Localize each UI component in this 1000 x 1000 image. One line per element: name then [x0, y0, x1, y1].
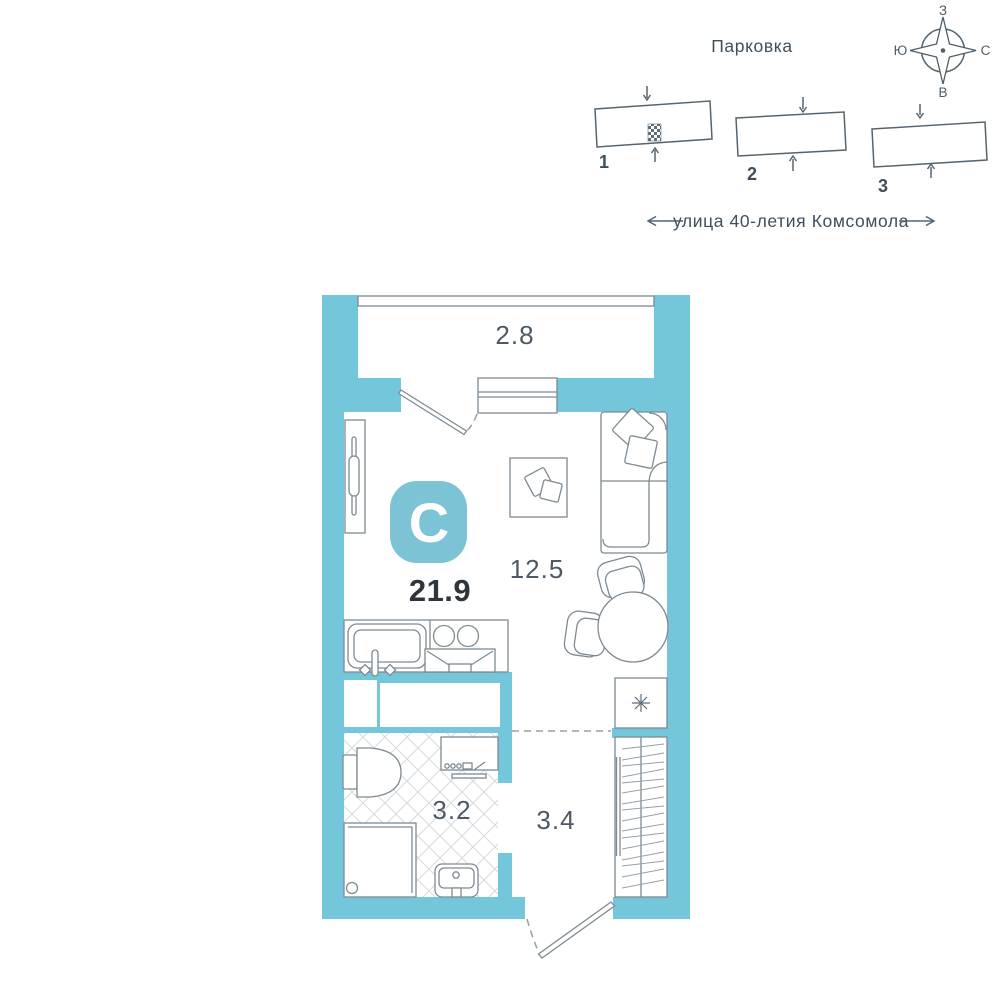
street-label-group: улица 40-летия Комсомола: [648, 211, 934, 231]
wall-left: [322, 412, 344, 897]
wall-balcony-right-segment: [557, 378, 667, 412]
fridge: [615, 678, 667, 728]
table-decor: [539, 479, 562, 502]
building-3-arrow-down-icon: [917, 104, 924, 118]
wall-top-left: [322, 295, 358, 412]
wall-right: [667, 412, 690, 919]
wall-bathroom-jamb-bottom: [498, 853, 512, 897]
shower: [344, 823, 416, 897]
hallway: [527, 737, 667, 958]
building-3-outline: [872, 122, 987, 167]
sofa: [601, 408, 667, 553]
compass-letter-left: Ю: [894, 43, 908, 58]
burner-icon: [458, 626, 479, 647]
entrance-door: [527, 902, 615, 958]
sofa-pillow: [624, 435, 657, 468]
building-2-number: 2: [747, 164, 757, 184]
building-2: 2: [736, 97, 846, 184]
washbasin: [435, 864, 478, 897]
parking-title: Парковка: [711, 36, 793, 56]
total-area-label: 21.9: [409, 573, 471, 608]
building-2-arrow-down-icon: [800, 97, 807, 112]
wall-niche-shaft: [380, 683, 500, 727]
building-3: 3: [872, 104, 987, 196]
parking-area: Парковка 1 2: [595, 36, 987, 196]
bathroom: [343, 733, 498, 897]
compass-letter-bottom: В: [938, 85, 947, 100]
wall-bathroom-jamb-top: [498, 733, 512, 783]
building-1-arrow-down-icon: [644, 86, 651, 100]
building-1-entrance-marker: [648, 124, 661, 141]
compass-center-dot: [941, 48, 946, 53]
balcony-area-label: 2.8: [495, 320, 534, 350]
wall-bottom-right: [613, 897, 690, 919]
dining-set: [563, 554, 668, 662]
building-2-arrow-up-icon: [790, 156, 797, 171]
hallway-area-label: 3.4: [536, 805, 575, 835]
wall-bottom-left: [322, 897, 525, 919]
floor-plan-page: З С В Ю Парковка 1 2: [0, 0, 1000, 1000]
wall-niche-small: [344, 680, 377, 727]
dining-table: [598, 592, 668, 662]
building-3-number: 3: [878, 176, 888, 196]
wardrobe: [615, 737, 667, 897]
street-name: улица 40-летия Комсомола: [673, 211, 909, 231]
compass-rose: З С В Ю: [894, 3, 991, 100]
tv-console: [345, 420, 365, 533]
shower-drain-icon: [347, 883, 358, 894]
plan-canvas: З С В Ю Парковка 1 2: [0, 0, 1000, 1000]
kitchen: [344, 620, 508, 676]
balcony-window-block: [478, 378, 557, 413]
building-1-number: 1: [599, 152, 609, 172]
building-1-arrow-up-icon: [652, 148, 659, 162]
logo-letter: С: [409, 491, 449, 554]
bathroom-area-label: 3.2: [432, 795, 471, 825]
balcony-door-leaf: [399, 390, 467, 435]
entrance-door-swing-arc: [527, 919, 540, 955]
building-2-outline: [736, 112, 846, 156]
living-area-label: 12.5: [510, 554, 565, 584]
building-1: 1: [595, 86, 712, 172]
balcony-door-swing-arc: [466, 414, 477, 432]
wall-balcony-left-segment: [358, 378, 401, 412]
compass-letter-top: З: [939, 3, 947, 18]
building-3-arrow-up-icon: [928, 164, 935, 178]
floor-plan: С 21.9 2.8 12.5 3.2 3.4: [322, 295, 690, 958]
burner-icon: [434, 626, 455, 647]
kitchen-sink: [348, 624, 426, 676]
entrance-door-leaf: [539, 902, 615, 958]
coffee-table: [510, 458, 567, 517]
balcony-glazing: [358, 296, 654, 306]
compass-letter-right: С: [981, 43, 991, 58]
faucet-icon: [372, 650, 378, 676]
